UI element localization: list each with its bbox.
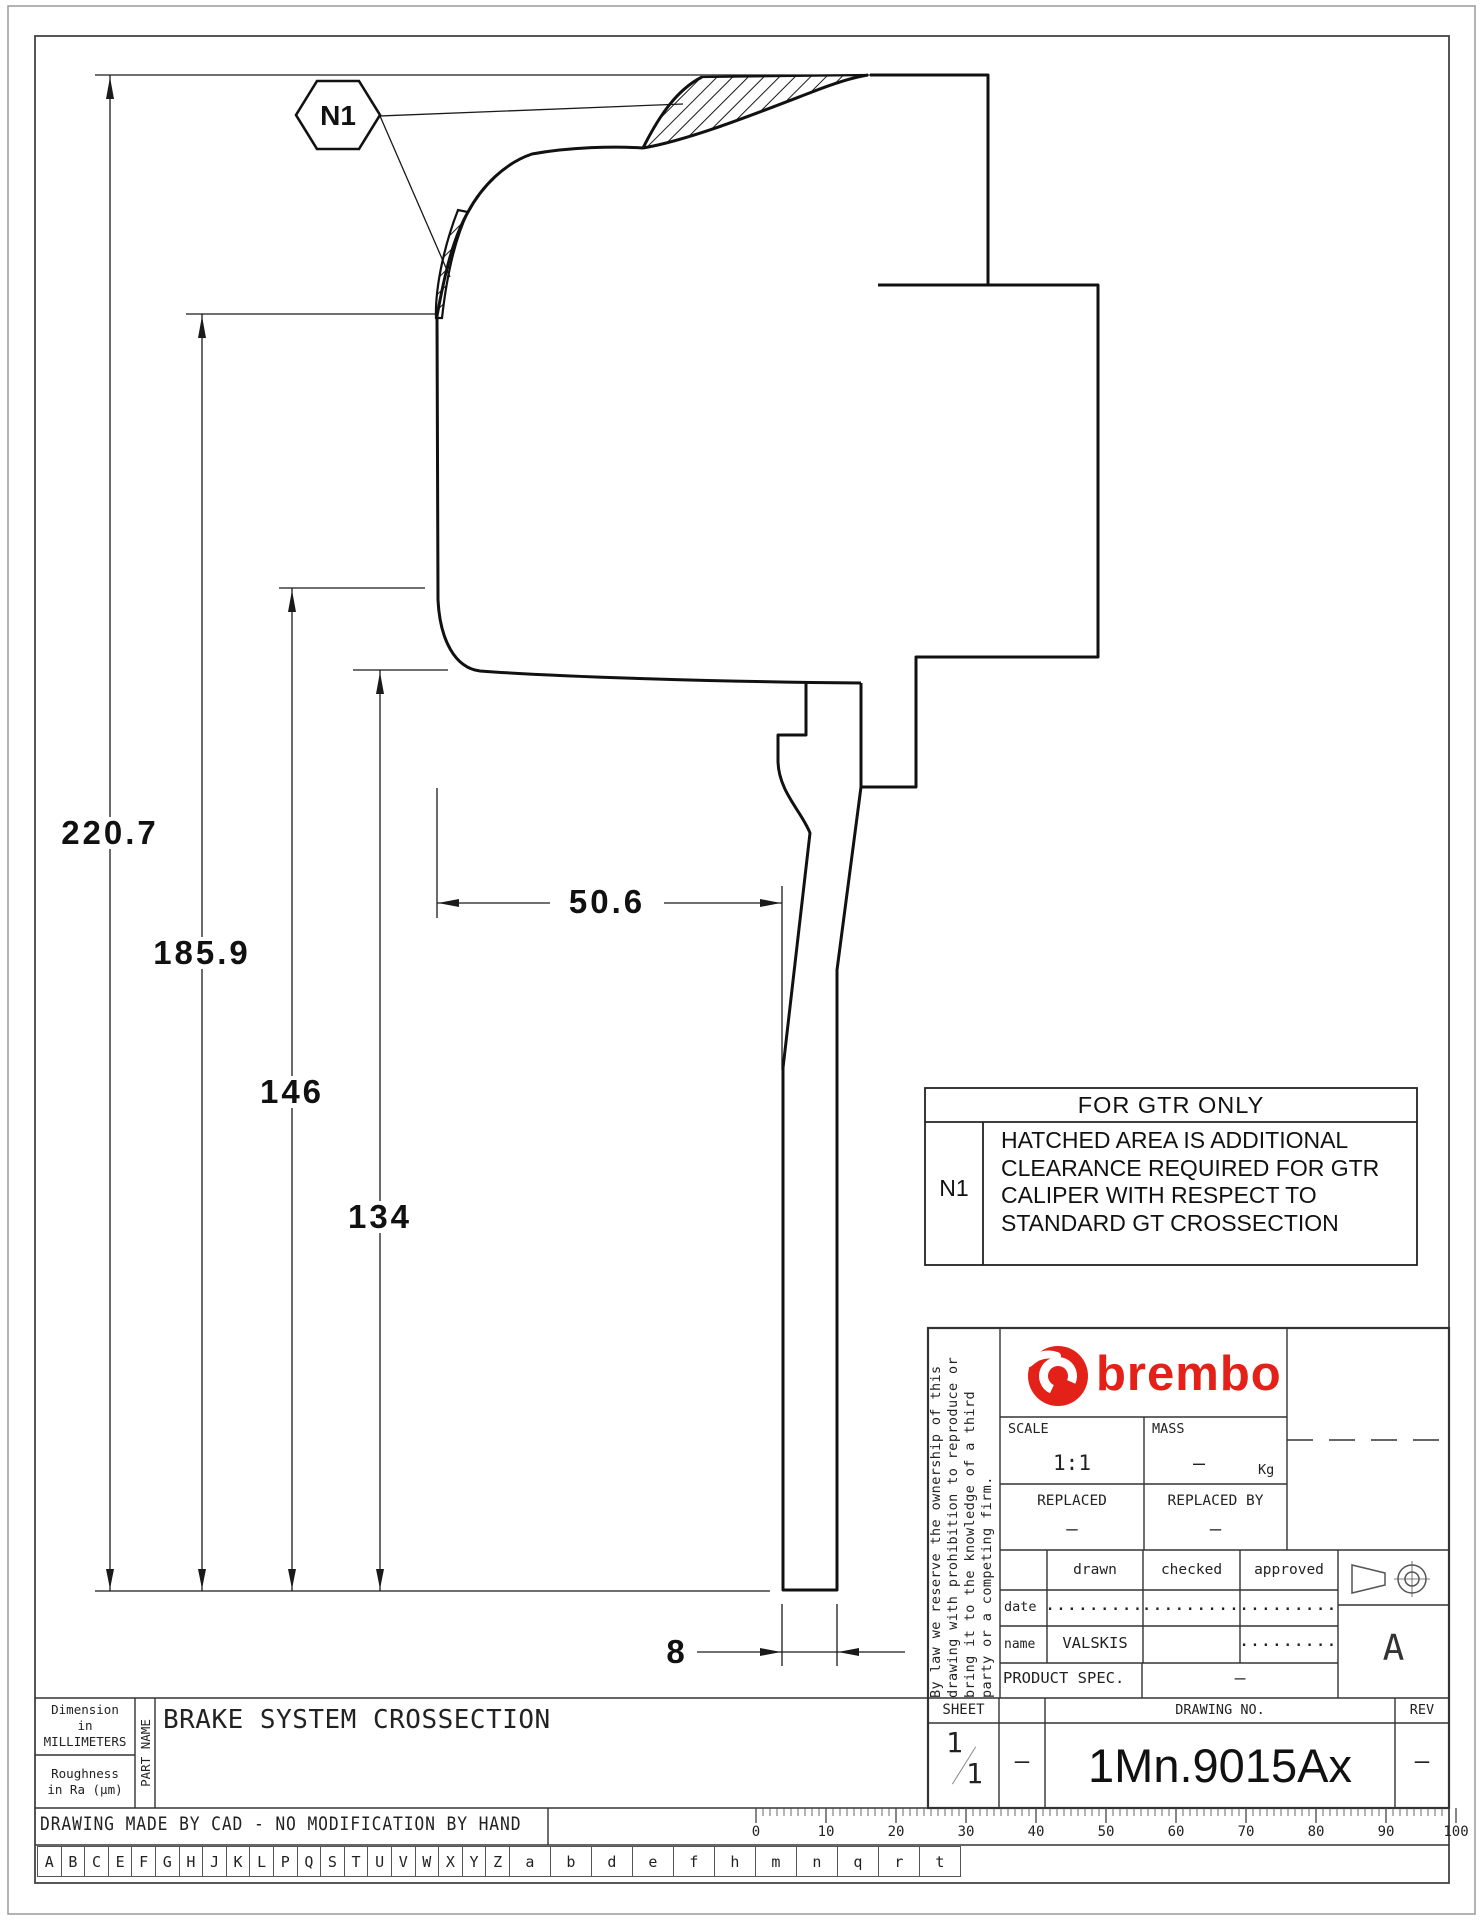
letter-cell: h (714, 1846, 756, 1877)
letter-cell: W (415, 1846, 440, 1877)
letter-cell: e (632, 1846, 674, 1877)
ruler-number: 20 (867, 1824, 925, 1840)
letter-cell: U (367, 1846, 392, 1877)
scale-value: 1:1 (1000, 1450, 1144, 1476)
ruler-number: 100 (1427, 1824, 1483, 1840)
replaced-value: – (1000, 1518, 1144, 1540)
replaced-label: REPLACED (1000, 1492, 1144, 1510)
ruler-number: 10 (797, 1824, 855, 1840)
letter-cell: A (37, 1846, 62, 1877)
letter-cell: r (878, 1846, 920, 1877)
letter-cell: Y (462, 1846, 487, 1877)
dimension-50-6: 50.6 (550, 887, 664, 917)
ruler-number: 30 (937, 1824, 995, 1840)
letter-cell: m (755, 1846, 797, 1877)
letter-cell: J (202, 1846, 227, 1877)
letter-cell: d (591, 1846, 633, 1877)
ruler-ticks (756, 1808, 1456, 1823)
mass-value: – (1144, 1450, 1254, 1476)
rev-value: – (1395, 1748, 1449, 1774)
letter-cell: E (108, 1846, 133, 1877)
ruler-number: 40 (1007, 1824, 1065, 1840)
name-checked (1143, 1632, 1240, 1654)
mass-label: MASS (1152, 1421, 1185, 1437)
column-approved: approved (1240, 1560, 1338, 1580)
letter-cell: b (550, 1846, 592, 1877)
ruler-number: 50 (1077, 1824, 1135, 1840)
letter-cell: L (249, 1846, 274, 1877)
date-approved: ......... (1240, 1596, 1338, 1616)
letter-cell: T (344, 1846, 369, 1877)
dimension-note-line1: Dimension (51, 1702, 119, 1718)
part-name-title: BRAKE SYSTEM CROSSECTION (163, 1705, 551, 1735)
extension-lines (95, 75, 988, 1666)
rev-label: REV (1395, 1701, 1449, 1719)
sheet-denominator: 1 (966, 1757, 983, 1790)
dimension-146: 146 (252, 1076, 332, 1108)
dimension-note-line2: in MILLIMETERS (35, 1718, 135, 1750)
letter-cell: f (673, 1846, 715, 1877)
legal-line-2: drawing with prohibition to reproduce or (945, 1328, 962, 1698)
letter-cell: C (84, 1846, 109, 1877)
column-drawn: drawn (1047, 1560, 1143, 1580)
letter-cell: X (438, 1846, 463, 1877)
brembo-wordmark: brembo (1096, 1346, 1282, 1402)
legal-notice: By law we reserve the ownership of this … (928, 1328, 1000, 1698)
sheet-numerator: 1 (946, 1726, 963, 1759)
revision-letter-row: ABCEFGHJKLPQSTUVWXYZabdefhmnqrt (38, 1846, 961, 1877)
replaced-by-label: REPLACED BY (1144, 1492, 1287, 1510)
date-label: date (1004, 1599, 1037, 1615)
date-checked: ......... (1143, 1596, 1240, 1616)
note-table-header: FOR GTR ONLY (925, 1092, 1417, 1118)
letter-cell: Z (485, 1846, 510, 1877)
ruler-number: 0 (727, 1824, 785, 1840)
date-drawn: ......... (1047, 1596, 1143, 1616)
legal-line-4: party or a competing firm. (979, 1328, 996, 1698)
name-label: name (1004, 1637, 1035, 1652)
dimension-8: 8 (660, 1636, 694, 1668)
dimension-220-7: 220.7 (40, 817, 180, 849)
dimension-185-9: 185.9 (132, 937, 272, 969)
dimension-unit-note: Dimension in MILLIMETERS (35, 1704, 135, 1748)
name-drawn: VALSKIS (1047, 1632, 1143, 1654)
note-table-text: HATCHED AREA IS ADDITIONAL CLEARANCE REQ… (1001, 1127, 1415, 1237)
ruler-number: 80 (1287, 1824, 1345, 1840)
letter-cell: a (509, 1846, 551, 1877)
letter-cell: F (131, 1846, 156, 1877)
mass-unit: Kg (1258, 1462, 1274, 1478)
ruler-number: 90 (1357, 1824, 1415, 1840)
projection-symbol-icon (1352, 1561, 1430, 1597)
part-name-label: PART NAME (135, 1698, 155, 1808)
brembo-logo-icon (1028, 1346, 1088, 1406)
legal-line-1: By law we reserve the ownership of this (928, 1328, 945, 1698)
letter-cell: P (273, 1846, 298, 1877)
roughness-note-line1: Roughness (51, 1766, 119, 1782)
letter-cell: q (837, 1846, 879, 1877)
product-spec-label: PRODUCT SPEC. (1003, 1669, 1124, 1687)
format-letter: A (1338, 1618, 1449, 1678)
note-line-2: CLEARANCE REQUIRED FOR GTR (1001, 1155, 1415, 1183)
roughness-note: Roughness in Ra (μm) (35, 1760, 135, 1804)
cad-note: DRAWING MADE BY CAD - NO MODIFICATION BY… (40, 1813, 521, 1835)
sheet-label: SHEET (928, 1701, 999, 1719)
note-line-1: HATCHED AREA IS ADDITIONAL (1001, 1127, 1415, 1155)
note-line-3: CALIPER WITH RESPECT TO (1001, 1182, 1415, 1210)
drawing-sheet: 220.7 185.9 146 134 50.6 8 N1 FOR GTR ON… (0, 0, 1483, 1920)
drawing-no-label: DRAWING NO. (1045, 1701, 1395, 1719)
letter-cell: B (61, 1846, 86, 1877)
letter-cell: n (796, 1846, 838, 1877)
letter-cell: t (919, 1846, 961, 1877)
letter-cell: Q (297, 1846, 322, 1877)
legal-line-3: bring it to the knowledge of a third (962, 1328, 979, 1698)
letter-cell: V (391, 1846, 416, 1877)
replaced-by-value: – (1144, 1518, 1287, 1540)
drawing-no-value: 1Mn.9015Ax (1045, 1738, 1395, 1792)
dimension-134: 134 (340, 1201, 420, 1233)
sheet-aux-value: – (999, 1748, 1045, 1774)
n1-callout-label: N1 (296, 99, 380, 133)
scale-label: SCALE (1008, 1421, 1049, 1437)
column-checked: checked (1143, 1560, 1240, 1580)
product-spec-value: – (1142, 1666, 1338, 1690)
roughness-note-line2: in Ra (μm) (47, 1782, 122, 1798)
letter-cell: S (320, 1846, 345, 1877)
note-table-ref: N1 (925, 1174, 983, 1202)
letter-cell: H (179, 1846, 204, 1877)
ruler-number: 60 (1147, 1824, 1205, 1840)
name-approved: ......... (1240, 1632, 1338, 1652)
letter-cell: G (155, 1846, 180, 1877)
letter-cell: K (226, 1846, 251, 1877)
note-line-4: STANDARD GT CROSSECTION (1001, 1210, 1415, 1238)
ruler-number: 70 (1217, 1824, 1275, 1840)
